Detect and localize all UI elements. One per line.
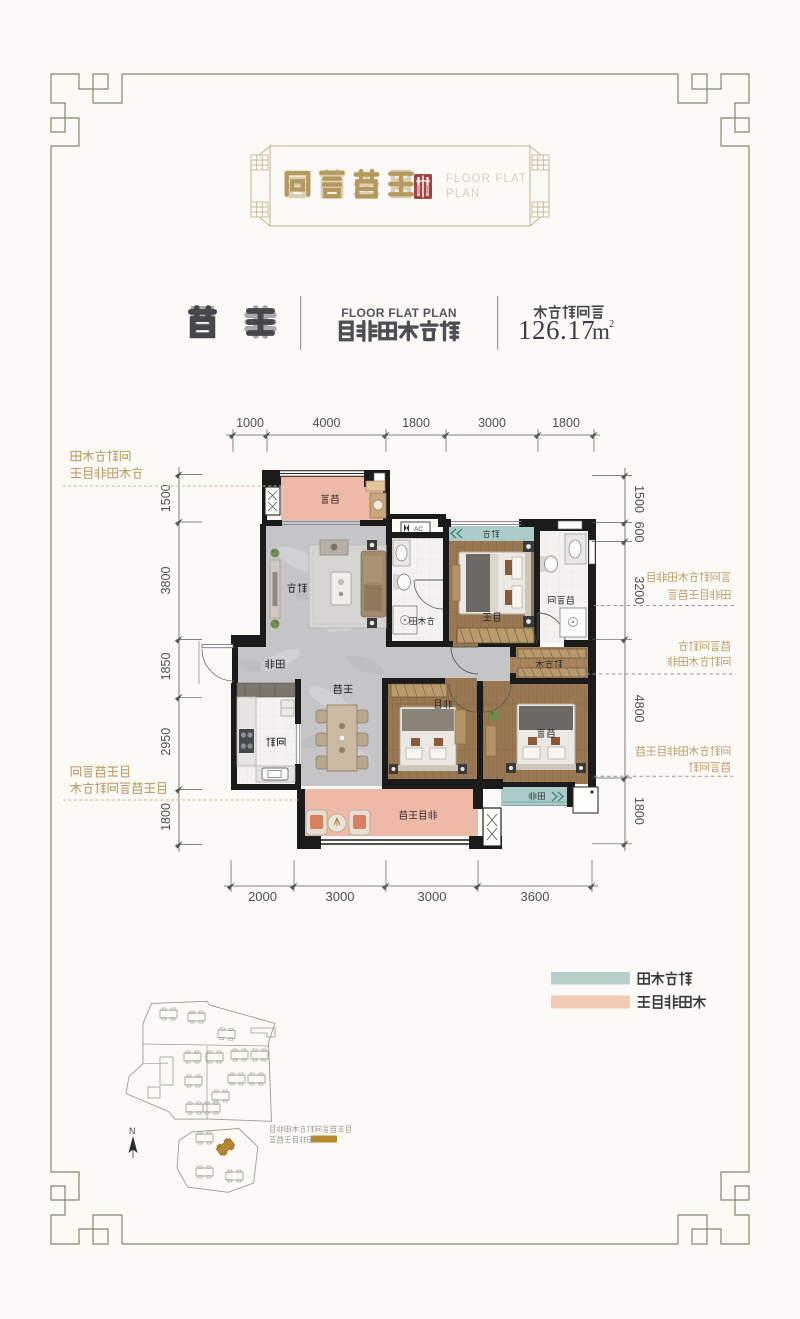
svg-text:126.17: 126.17 — [518, 315, 595, 345]
svg-text:3000: 3000 — [418, 889, 447, 904]
svg-text:PLAN: PLAN — [446, 188, 480, 200]
svg-text:3000: 3000 — [478, 416, 506, 430]
svg-text:2: 2 — [609, 319, 614, 330]
svg-text:FLOOR FLAT: FLOOR FLAT — [446, 173, 527, 185]
svg-text:1500: 1500 — [632, 485, 646, 513]
svg-text:600: 600 — [632, 522, 646, 543]
svg-text:3200: 3200 — [632, 576, 646, 604]
svg-text:3600: 3600 — [521, 889, 550, 904]
svg-text:N: N — [129, 1126, 136, 1136]
svg-text:4000: 4000 — [313, 416, 341, 430]
svg-text:1800: 1800 — [552, 416, 580, 430]
svg-text:2000: 2000 — [248, 889, 277, 904]
svg-text:1850: 1850 — [159, 653, 173, 681]
svg-text:1800: 1800 — [159, 803, 173, 831]
svg-text:FLOOR FLAT PLAN: FLOOR FLAT PLAN — [341, 306, 457, 320]
svg-text:1800: 1800 — [402, 416, 430, 430]
svg-text:AC: AC — [414, 526, 423, 533]
svg-text:3800: 3800 — [159, 567, 173, 595]
svg-text:1000: 1000 — [236, 416, 264, 430]
svg-text:1800: 1800 — [632, 797, 646, 825]
svg-text:3000: 3000 — [326, 889, 355, 904]
svg-text:2950: 2950 — [159, 728, 173, 756]
svg-text:m: m — [592, 319, 610, 344]
svg-text:1500: 1500 — [159, 484, 173, 512]
svg-text:4800: 4800 — [632, 695, 646, 723]
